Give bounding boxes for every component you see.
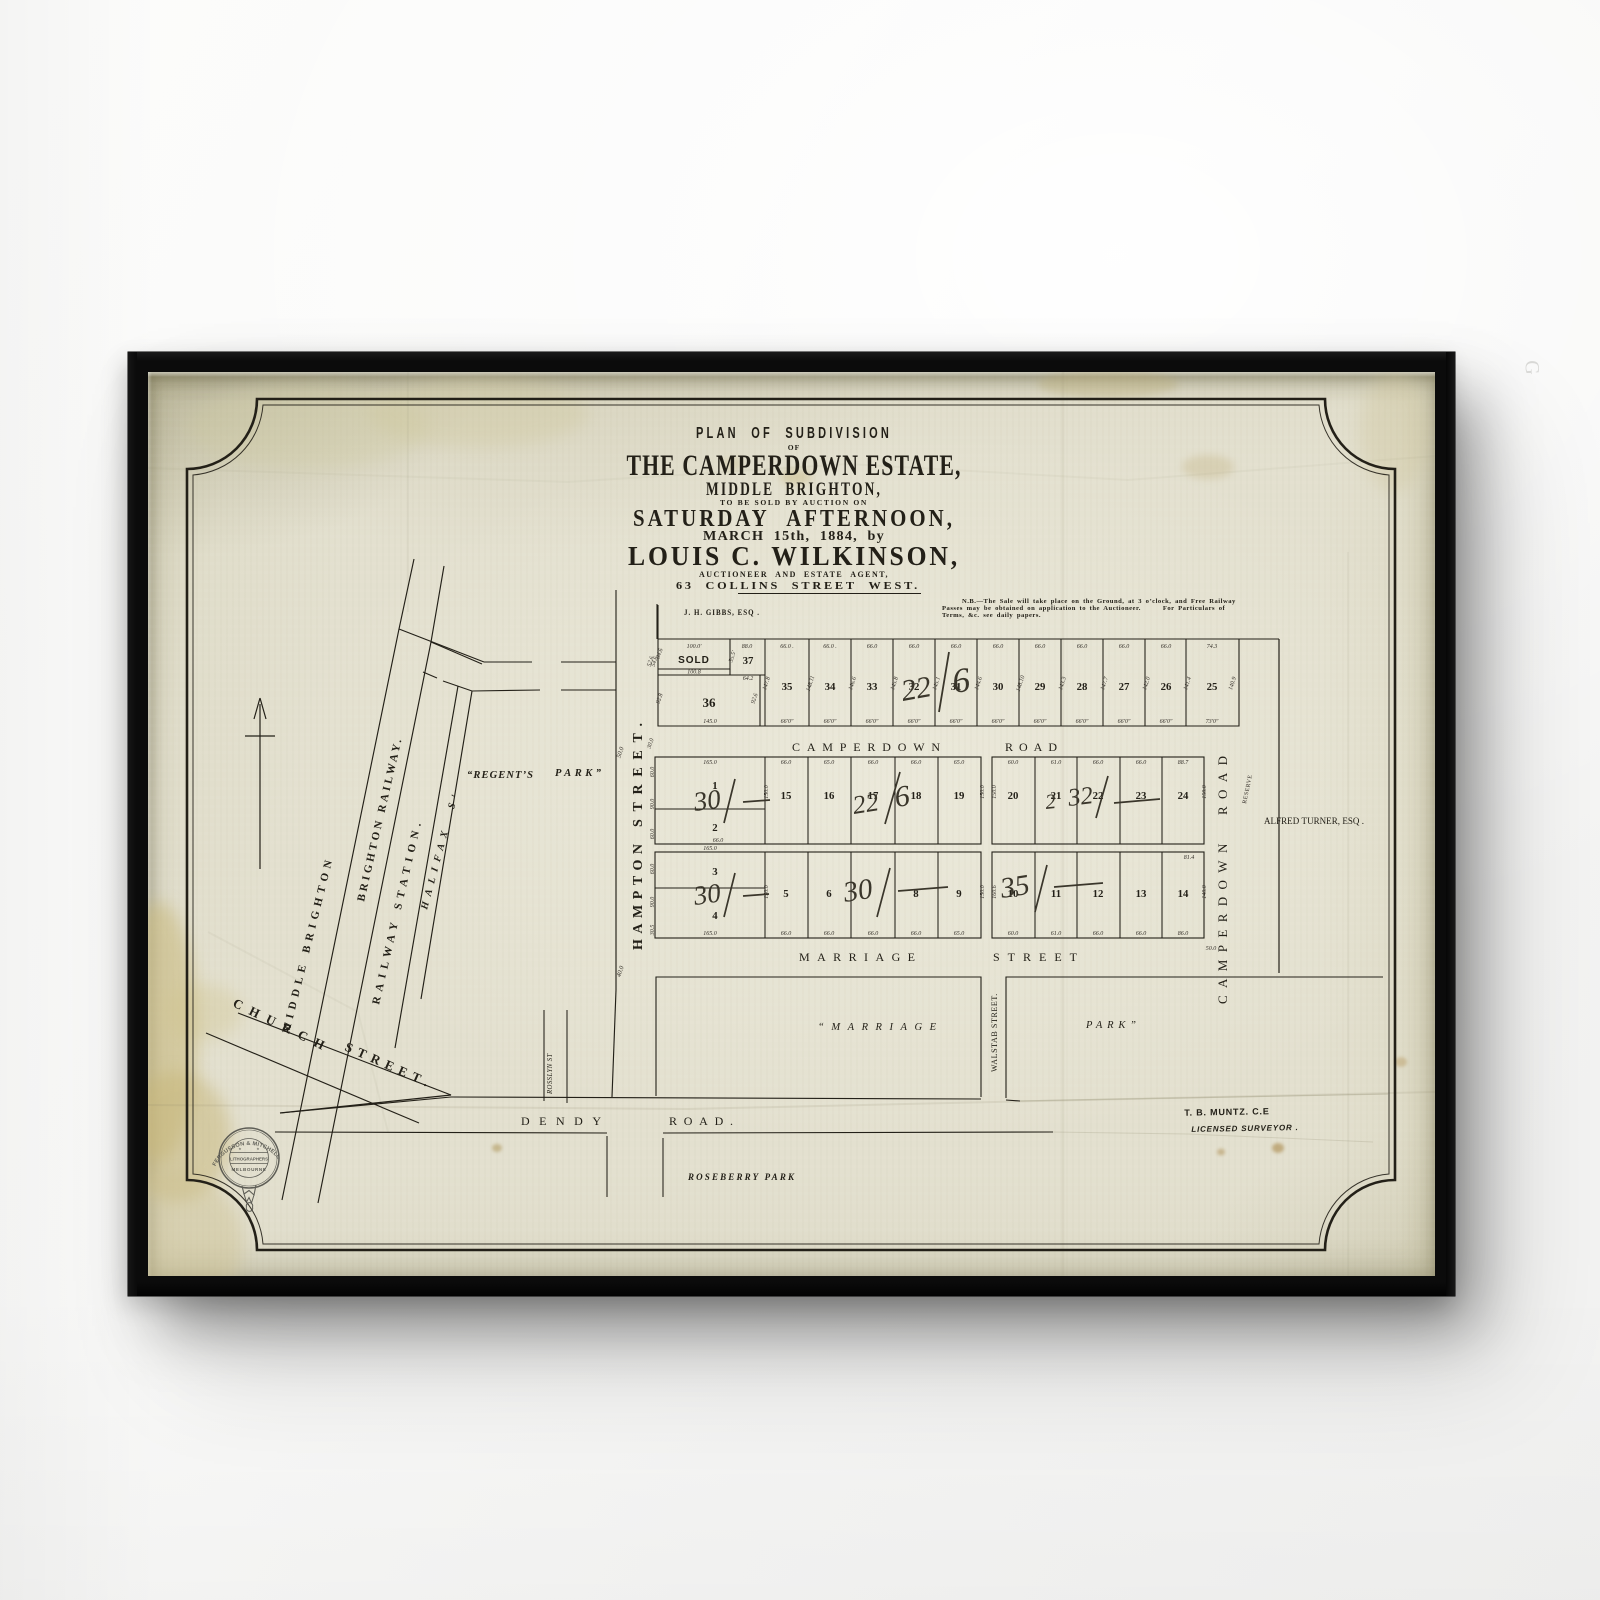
svg-text:66.0 .: 66.0 . (780, 644, 794, 650)
svg-text:66.0: 66.0 (781, 931, 792, 937)
svg-text:66.0: 66.0 (911, 760, 922, 766)
svg-text:PARK”: PARK” (1085, 1020, 1136, 1031)
svg-text:150.0: 150.0 (992, 785, 998, 799)
svg-text:6: 6 (826, 888, 832, 900)
svg-text:15: 15 (781, 790, 792, 802)
svg-text:LOUIS C. WILKINSON,: LOUIS C. WILKINSON, (628, 541, 960, 571)
svg-text:22: 22 (850, 787, 880, 820)
svg-text:40.0: 40.0 (616, 964, 626, 978)
svg-text:145.1: 145.1 (931, 676, 942, 691)
svg-text:25: 25 (1207, 681, 1218, 693)
svg-text:66′0″: 66′0″ (824, 719, 837, 725)
svg-text:ROAD: ROAD (1005, 740, 1057, 754)
svg-text:165.0: 165.0 (703, 931, 717, 937)
svg-text:88.0: 88.0 (742, 644, 753, 650)
svg-text:30: 30 (993, 681, 1004, 693)
svg-text:60.0: 60.0 (1008, 931, 1019, 937)
svg-text:36: 36 (703, 695, 717, 710)
svg-text:RESERVE: RESERVE (1242, 774, 1254, 804)
svg-text:60.0: 60.0 (1008, 760, 1019, 766)
svg-text:27: 27 (1119, 681, 1130, 693)
svg-text:66′0″: 66′0″ (992, 719, 1005, 725)
svg-text:66′0″: 66′0″ (781, 719, 794, 725)
svg-text:66.0: 66.0 (824, 931, 835, 937)
svg-text:66.0: 66.0 (867, 644, 878, 650)
svg-text:100.8: 100.8 (687, 670, 701, 676)
svg-text:2: 2 (712, 822, 717, 834)
svg-text:13: 13 (1136, 888, 1147, 900)
svg-text:T. B. MUNTZ. C.E: T. B. MUNTZ. C.E (1184, 1106, 1269, 1117)
svg-text:50.0: 50.0 (616, 745, 626, 759)
svg-text:140.0: 140.0 (1201, 885, 1208, 899)
svg-text:61.0: 61.0 (1051, 931, 1062, 937)
svg-text:Passes may be obtained on appl: Passes may be obtained on application to… (942, 605, 1226, 612)
svg-text:141.4: 141.4 (1182, 676, 1193, 691)
svg-text:150.0: 150.0 (764, 885, 770, 899)
svg-text:LICENSED SURVEYOR .: LICENSED SURVEYOR . (1191, 1123, 1298, 1134)
svg-text:WALSTAB STREET.: WALSTAB STREET. (990, 993, 999, 1072)
svg-text:66.0: 66.0 (909, 644, 920, 650)
svg-text:66.0: 66.0 (781, 760, 792, 766)
svg-text:144.6: 144.6 (973, 676, 984, 691)
svg-text:34: 34 (825, 681, 836, 693)
svg-text:6: 6 (950, 660, 973, 701)
svg-text:92.6: 92.6 (751, 693, 760, 705)
svg-text:65.0: 65.0 (954, 760, 965, 766)
svg-text:86.0: 86.0 (1178, 931, 1189, 937)
svg-text:CHURCH: CHURCH (231, 995, 327, 1052)
svg-text:64.2: 64.2 (743, 675, 754, 682)
svg-text:66′0″: 66′0″ (908, 719, 921, 725)
svg-text:24: 24 (1178, 790, 1189, 802)
svg-text:147.8: 147.8 (761, 676, 772, 691)
svg-text:61.0: 61.0 (1051, 760, 1062, 766)
svg-text:HALIFAX Sᵗ: HALIFAX Sᵗ (419, 793, 461, 912)
svg-text:STREET.: STREET. (343, 1039, 431, 1089)
svg-text:66′0″: 66′0″ (1034, 719, 1047, 725)
svg-text:66.0: 66.0 (713, 838, 724, 844)
svg-text:28: 28 (1077, 681, 1088, 693)
svg-text:66.0: 66.0 (868, 760, 879, 766)
svg-text:BRIGHTON RAILWAY.: BRIGHTON RAILWAY. (355, 738, 404, 903)
svg-text:66.0: 66.0 (1093, 931, 1104, 937)
svg-text:30: 30 (840, 873, 875, 909)
svg-text:66′0″: 66′0″ (866, 719, 879, 725)
svg-text:12: 12 (1093, 888, 1104, 900)
svg-text:147.7: 147.7 (1099, 675, 1110, 691)
svg-text:148.11: 148.11 (805, 675, 817, 692)
svg-text:150.0: 150.0 (764, 785, 770, 799)
svg-text:26: 26 (1161, 681, 1172, 693)
svg-text:30.0: 30.0 (646, 738, 655, 751)
svg-text:66.0: 66.0 (1136, 760, 1147, 766)
svg-text:66′0″: 66′0″ (1160, 719, 1173, 725)
svg-text:92.8: 92.8 (656, 693, 665, 705)
svg-text:81.4: 81.4 (1184, 854, 1195, 861)
svg-text:29: 29 (1035, 681, 1046, 693)
svg-text:88.7: 88.7 (1178, 760, 1190, 766)
svg-text:90.0: 90.0 (650, 897, 656, 908)
svg-text:66.0: 66.0 (1093, 760, 1104, 766)
svg-text:22: 22 (898, 670, 933, 708)
svg-text:148.10: 148.10 (1015, 675, 1027, 693)
svg-text:MIDDLE BRIGHTON: MIDDLE BRIGHTON (280, 859, 335, 1035)
svg-text:74.3: 74.3 (1207, 643, 1218, 650)
svg-text:66′0″: 66′0″ (1076, 719, 1089, 725)
svg-text:33: 33 (867, 681, 878, 693)
svg-text:160.6: 160.6 (992, 885, 998, 899)
svg-text:35: 35 (782, 681, 793, 693)
svg-text:19: 19 (954, 790, 965, 802)
svg-text:66.0: 66.0 (911, 931, 922, 937)
svg-text:ALFRED TURNER, ESQ .: ALFRED TURNER, ESQ . (1264, 816, 1364, 826)
svg-text:ROSEBERRY PARK: ROSEBERRY PARK (687, 1172, 795, 1182)
svg-text:PARK”: PARK” (555, 768, 602, 779)
svg-text:J. H. GIBBS, ESQ .: J. H. GIBBS, ESQ . (684, 607, 760, 617)
svg-text:165.0: 165.0 (703, 846, 717, 852)
svg-text:35: 35 (997, 869, 1032, 905)
svg-text:“REGENT’S: “REGENT’S (467, 770, 533, 781)
svg-text:143.3: 143.3 (1057, 676, 1068, 691)
svg-text:SOLD: SOLD (678, 655, 710, 666)
svg-text:150.0: 150.0 (1202, 785, 1208, 799)
svg-text:66.0: 66.0 (868, 931, 879, 937)
svg-text:66′0″: 66′0″ (950, 719, 963, 725)
svg-text:30: 30 (691, 877, 723, 911)
svg-text:PLAN OF SUBDIVISION: PLAN OF SUBDIVISION (696, 425, 892, 442)
svg-text:65.0: 65.0 (824, 760, 835, 766)
svg-text:60.0: 60.0 (650, 829, 656, 840)
svg-text:146.6: 146.6 (847, 676, 858, 691)
svg-text:20: 20 (1008, 790, 1019, 802)
svg-text:THE CAMPERDOWN ESTATE,: THE CAMPERDOWN ESTATE, (627, 449, 962, 482)
svg-text:165.0: 165.0 (703, 760, 717, 766)
svg-text:66.0: 66.0 (1077, 644, 1088, 650)
svg-text:N.B.—The Sale will take place: N.B.—The Sale will take place on the Gro… (962, 598, 1236, 605)
svg-text:145.0: 145.0 (703, 718, 717, 725)
svg-text:37: 37 (743, 655, 754, 667)
svg-text:DENDY: DENDY (521, 1114, 601, 1128)
svg-text:66.0: 66.0 (1119, 644, 1130, 650)
svg-text:MIDDLE BRIGHTON,: MIDDLE BRIGHTON, (706, 480, 882, 500)
svg-text:30: 30 (691, 783, 723, 817)
svg-text:MARRIAGE: MARRIAGE (799, 950, 915, 964)
svg-text:5: 5 (783, 888, 788, 900)
svg-text:AUCTIONEER AND ESTATE AGENT: AUCTIONEER AND ESTATE AGENT, (699, 569, 889, 579)
svg-text:ROAD.: ROAD. (669, 1114, 733, 1128)
svg-text:100.0′: 100.0′ (687, 644, 703, 650)
svg-text:60.0: 60.0 (650, 864, 656, 875)
svg-text:18: 18 (911, 790, 922, 802)
svg-text:66′0″: 66′0″ (1118, 719, 1131, 725)
svg-text:73′0″: 73′0″ (1206, 719, 1219, 725)
svg-text:66.0: 66.0 (993, 644, 1004, 650)
svg-text:66.0: 66.0 (951, 644, 962, 650)
svg-text:32: 32 (1065, 782, 1094, 812)
svg-text:6: 6 (892, 779, 911, 814)
svg-text:66.0 .: 66.0 . (823, 644, 837, 650)
svg-text:150.0: 150.0 (980, 785, 986, 799)
svg-text:HAMPTON: HAMPTON (631, 844, 646, 950)
svg-text:STREET.: STREET. (631, 723, 646, 827)
svg-text:3: 3 (712, 866, 718, 878)
svg-text:9: 9 (956, 888, 962, 900)
svg-text:63 COLLINS STREET WEST.: 63 COLLINS STREET WEST. (676, 580, 920, 592)
svg-text:LITHOGRAPHERS: LITHOGRAPHERS (230, 1156, 268, 1161)
svg-text:CAMPERDOWN ROAD: CAMPERDOWN ROAD (1215, 756, 1230, 1004)
svg-text:140.9: 140.9 (1227, 676, 1238, 691)
svg-text:65.0: 65.0 (954, 931, 965, 937)
svg-text:CAMPERDOWN: CAMPERDOWN (792, 740, 940, 754)
svg-text:90.0: 90.0 (650, 799, 656, 810)
svg-text:ROSSLYN ST: ROSSLYN ST (547, 1052, 554, 1095)
svg-text:Terms, &c. see daily papers.: Terms, &c. see daily papers. (942, 612, 1041, 619)
svg-text:142.0: 142.0 (1141, 676, 1152, 691)
svg-text:11: 11 (1051, 888, 1061, 900)
svg-text:66.0: 66.0 (1035, 644, 1046, 650)
svg-text:150.0: 150.0 (980, 885, 986, 899)
svg-text:66.0: 66.0 (1161, 644, 1172, 650)
svg-text:14: 14 (1178, 888, 1189, 900)
svg-text:STREET: STREET (993, 950, 1078, 964)
svg-text:16: 16 (824, 790, 835, 802)
svg-text:4: 4 (712, 910, 718, 922)
svg-text:30.5: 30.5 (650, 925, 656, 937)
svg-text:60.0: 60.0 (650, 767, 656, 778)
svg-text:“MARRIAGE: “MARRIAGE (818, 1022, 937, 1033)
svg-text:66.0: 66.0 (1136, 931, 1147, 937)
svg-text:MELBOURNE: MELBOURNE (231, 1167, 266, 1172)
